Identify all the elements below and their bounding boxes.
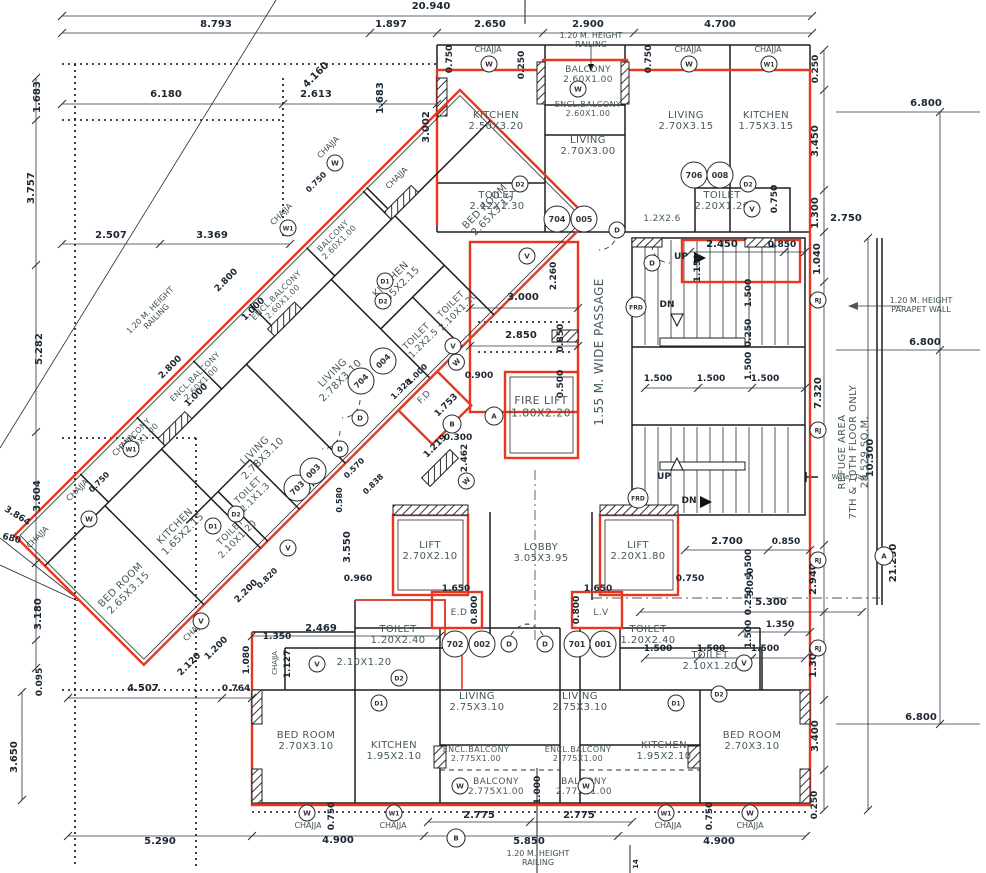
dimension-label: 6.800	[909, 337, 941, 348]
svg-text:005: 005	[576, 215, 593, 224]
tag-circle-frd: FRD	[626, 297, 646, 317]
dimension-label: 0.850	[768, 240, 796, 250]
dimension-label: 1.500	[744, 279, 754, 307]
dimension-label: 0.095	[35, 668, 45, 696]
tag-circle-002: 002	[469, 631, 495, 657]
svg-text:704: 704	[549, 215, 566, 224]
dimension-label: 2.613	[300, 89, 332, 100]
svg-text:D2: D2	[515, 182, 524, 189]
dimension-label: 8.793	[200, 19, 232, 30]
svg-text:702: 702	[447, 640, 464, 649]
dimension-label: 2.469	[305, 623, 337, 634]
tag-circle-d: D	[352, 410, 368, 426]
tag-circle-d2: D2	[740, 176, 756, 192]
dimension-label: 3.550	[342, 531, 353, 563]
svg-text:D1: D1	[374, 701, 383, 708]
room-label: L.V	[593, 608, 609, 618]
svg-text:D: D	[357, 415, 363, 423]
dimension-label: 1.127	[283, 650, 293, 678]
svg-text:706: 706	[686, 171, 703, 180]
tag-circle-d: D	[537, 636, 553, 652]
svg-text:RJ: RJ	[815, 646, 822, 653]
dimension-label: 2.450	[706, 239, 738, 250]
tag-circle-d2: D2	[711, 686, 727, 702]
tag-circle-w: W	[742, 805, 758, 821]
dimension-label: 3.400	[810, 720, 821, 752]
svg-text:V: V	[314, 661, 320, 669]
dimension-label: 20.940	[412, 1, 451, 12]
note-label: 1.20 M. HEIGHTPARAPET WALL	[890, 296, 953, 314]
dimension-label: UP	[657, 472, 671, 482]
note-label: CHAJJA	[271, 651, 279, 675]
tag-circle-v: V	[280, 540, 296, 556]
dimension-label: 2.462	[460, 444, 470, 472]
tag-circle-d1: D1	[371, 695, 387, 711]
svg-text:W: W	[574, 86, 582, 94]
svg-text:D: D	[506, 641, 512, 649]
svg-text:D1: D1	[208, 524, 217, 531]
dimension-label: DN	[681, 496, 696, 506]
dimension-label: 3.757	[26, 172, 37, 204]
tag-circle-w: W	[327, 155, 343, 171]
svg-text:001: 001	[595, 640, 612, 649]
dimension-label: 1.897	[375, 19, 407, 30]
room-label: 1.2X2.6	[643, 214, 681, 224]
tag-circle-w1: W1	[386, 805, 402, 821]
svg-text:A: A	[491, 413, 497, 421]
dimension-label: 0.960	[344, 574, 372, 584]
dimension-label: 2.775	[463, 810, 495, 821]
svg-text:W1: W1	[126, 447, 137, 454]
svg-text:W: W	[331, 160, 339, 168]
tag-circle-d: D	[609, 222, 625, 238]
svg-text:W: W	[582, 783, 590, 791]
svg-text:RJ: RJ	[815, 558, 822, 565]
room-label: KITCHEN1.75X3.15	[739, 110, 794, 132]
dimension-label: 4.900	[703, 836, 735, 847]
room-label: 2.10X1.20	[337, 657, 392, 668]
dimension-label: 2.775	[563, 810, 595, 821]
dimension-label: 2.507	[95, 230, 127, 241]
svg-text:V: V	[741, 660, 747, 668]
dimension-label: 3.604	[32, 480, 43, 512]
svg-text:V: V	[285, 545, 291, 553]
dimension-label: 0.250	[811, 55, 821, 83]
svg-text:D2: D2	[378, 299, 387, 306]
dimension-label: 0.250	[517, 51, 527, 79]
tag-circle-d1: D1	[205, 518, 221, 534]
tag-circle-w: W	[81, 511, 97, 527]
dimension-label: 1.300	[810, 197, 821, 229]
dimension-label: 0.300	[444, 433, 472, 443]
room-label: BALCONY2.60X1.00	[563, 65, 613, 85]
svg-text:W: W	[746, 810, 754, 818]
dimension-label: 1.040	[812, 243, 823, 275]
tag-circle-d: D	[332, 441, 348, 457]
svg-text:W1: W1	[764, 62, 775, 69]
tag-circle-706: 706	[681, 162, 707, 188]
svg-text:008: 008	[712, 171, 729, 180]
dimension-label: 1.350	[263, 632, 291, 642]
dimension-label: 0.750	[770, 185, 780, 213]
tag-circle-w: W	[299, 805, 315, 821]
tag-circle-b: B	[443, 415, 461, 433]
svg-text:B: B	[453, 835, 458, 843]
tag-circle-d2: D2	[228, 506, 244, 522]
note-label: Water Tap	[832, 473, 867, 481]
dimension-label: 3.369	[196, 230, 228, 241]
dimension-label: 2.850	[505, 330, 537, 341]
dimension-label: 0.764	[222, 684, 250, 694]
tag-circle-rj: RJ	[810, 292, 826, 308]
tag-circle-d1: D1	[668, 695, 684, 711]
dimension-label: 6.180	[150, 89, 182, 100]
tag-circle-w: W	[578, 778, 594, 794]
tag-circle-a: A	[485, 407, 503, 425]
dimension-label: 0.750	[445, 45, 455, 73]
dimension-label: 3.650	[9, 741, 20, 773]
svg-text:W: W	[85, 516, 93, 524]
svg-text:D2: D2	[743, 182, 752, 189]
dimension-label: 6.800	[910, 98, 942, 109]
dimension-label: 1.500	[751, 644, 779, 654]
note-label: CHAJJA	[379, 821, 407, 830]
note-label: CHAJJA	[736, 821, 764, 830]
dimension-label: 3.180	[33, 598, 44, 630]
dimension-label: 1.650	[442, 584, 470, 594]
svg-text:W: W	[303, 810, 311, 818]
tag-circle-rj: RJ	[810, 422, 826, 438]
svg-text:B: B	[449, 421, 454, 429]
tag-circle-005: 005	[571, 206, 597, 232]
tag-circle-d2: D2	[512, 176, 528, 192]
dimension-label: 2.750	[830, 213, 862, 224]
tag-circle-702: 702	[442, 631, 468, 657]
svg-text:FRD: FRD	[631, 496, 645, 503]
dimension-label: 3.000	[507, 292, 539, 303]
svg-text:A: A	[881, 553, 887, 561]
dimension-label: 6.800	[905, 712, 937, 723]
svg-text:D1: D1	[671, 701, 680, 708]
svg-text:W1: W1	[283, 226, 294, 233]
svg-text:D: D	[614, 227, 620, 235]
svg-text:V: V	[524, 253, 530, 261]
tag-circle-d1: D1	[377, 273, 393, 289]
room-label: BALCONY2.775X1.00	[468, 777, 524, 797]
tag-circle-d: D	[644, 255, 660, 271]
dimension-label: 0.800	[572, 596, 582, 624]
svg-text:FRD: FRD	[629, 305, 643, 312]
dimension-label: 5.282	[34, 333, 45, 365]
svg-text:D: D	[542, 641, 548, 649]
tag-circle-w: W	[570, 81, 586, 97]
tag-circle-b: B	[447, 829, 465, 847]
floor-plan-canvas: BED ROOM2.65X3.15KITCHEN1.65X2.15TOILET2…	[0, 0, 986, 873]
dimension-label: 14	[632, 859, 640, 869]
floor-plan-svg: BED ROOM2.65X3.15KITCHEN1.65X2.15TOILET2…	[0, 0, 986, 873]
note-label: CHAJJA	[654, 821, 682, 830]
note-label: CHAJJA	[754, 45, 782, 54]
tag-circle-v: V	[309, 656, 325, 672]
svg-text:D1: D1	[380, 279, 389, 286]
dimension-label: 1.683	[32, 81, 43, 113]
svg-text:D: D	[337, 446, 343, 454]
room-label: E.D	[451, 608, 468, 618]
svg-text:D: D	[649, 260, 655, 268]
svg-text:RJ: RJ	[815, 428, 822, 435]
tag-circle-rj: RJ	[810, 552, 826, 568]
tag-circle-w1: W1	[123, 441, 139, 457]
dimension-label: 1.500	[644, 374, 672, 384]
tag-circle-v: V	[519, 248, 535, 264]
tag-circle-a: A	[875, 547, 893, 565]
dimension-label: 0.750	[644, 45, 654, 73]
dimension-label: 7.320	[813, 377, 824, 409]
dimension-label: 1.683	[375, 82, 386, 114]
tag-circle-d2: D2	[391, 670, 407, 686]
room-label: BED ROOM2.70X3.10	[723, 730, 782, 752]
room-label: 1.55 M. WIDE PASSAGE	[592, 278, 606, 426]
tag-circle-d2: D2	[375, 293, 391, 309]
dimension-label: 1.080	[242, 646, 252, 674]
tag-circle-rj: RJ	[810, 640, 826, 656]
dimension-label: 4.700	[704, 19, 736, 30]
dimension-label: 0.850	[772, 537, 800, 547]
tag-circle-v: V	[736, 655, 752, 671]
dimension-label: 1.000	[533, 776, 543, 804]
room-label: KITCHEN1.95X2.10	[367, 740, 422, 762]
dimension-label: 0.900	[465, 371, 493, 381]
svg-text:D2: D2	[394, 676, 403, 683]
note-label: CHAJJA	[474, 45, 502, 54]
room-label: ENCL.BALCONY2.775X1.00	[443, 745, 510, 763]
tag-circle-701: 701	[564, 631, 590, 657]
room-label: BED ROOM2.70X3.10	[277, 730, 336, 752]
dimension-label: 2.650	[474, 19, 506, 30]
svg-text:W: W	[685, 61, 693, 69]
dimension-label: 1.500	[744, 352, 754, 380]
dimension-label: 0.250	[810, 791, 820, 819]
room-label: FIRE LIFT1.80X2.20	[511, 394, 571, 419]
tag-circle-frd: FRD	[628, 488, 648, 508]
dimension-label: 2.900	[572, 19, 604, 30]
room-label: KITCHEN1.95X2.10	[637, 740, 692, 762]
tag-circle-w: W	[681, 56, 697, 72]
dimension-label: 4.507	[127, 683, 159, 694]
svg-text:D2: D2	[231, 512, 240, 519]
dimension-label: 1.500	[697, 374, 725, 384]
dimension-label: DN	[659, 300, 674, 310]
dimension-label: 5.300	[755, 597, 787, 608]
dimension-label: 2.260	[549, 262, 559, 290]
svg-text:V: V	[450, 343, 456, 351]
dimension-label: 1.350	[766, 620, 794, 630]
note-label: CHAJJA	[294, 821, 322, 830]
dimension-label: UP	[674, 252, 688, 262]
tag-circle-w: W	[481, 56, 497, 72]
svg-text:W1: W1	[389, 811, 400, 818]
tag-circle-008: 008	[707, 162, 733, 188]
dimension-label: 0.580	[335, 487, 344, 513]
dimension-label: 3.002	[421, 111, 432, 143]
svg-text:RJ: RJ	[815, 298, 822, 305]
svg-text:D2: D2	[714, 692, 723, 699]
svg-text:W: W	[485, 61, 493, 69]
dimension-label: 0.750	[676, 574, 704, 584]
dimension-label: 4.900	[322, 835, 354, 846]
tag-circle-v: V	[445, 338, 461, 354]
tag-circle-w1: W1	[658, 805, 674, 821]
tag-circle-w1: W1	[761, 56, 777, 72]
svg-text:701: 701	[569, 640, 586, 649]
dimension-label: 3.450	[810, 125, 821, 157]
svg-text:V: V	[749, 206, 755, 214]
dimension-label: 5.290	[144, 836, 176, 847]
svg-text:002: 002	[474, 640, 491, 649]
dimension-label: 0.250	[744, 319, 754, 347]
svg-text:W1: W1	[661, 811, 672, 818]
tag-circle-w1: W1	[280, 220, 296, 236]
dimension-label: 3.050	[746, 568, 756, 596]
tag-circle-704: 704	[544, 206, 570, 232]
room-label: ENCL.BALCONY2.775X1.00	[545, 745, 612, 763]
dimension-label: 0.800	[470, 596, 480, 624]
tag-circle-v: V	[193, 613, 209, 629]
dimension-label: 0.750	[327, 802, 337, 830]
svg-text:W: W	[456, 783, 464, 791]
note-label: CHAJJA	[674, 45, 702, 54]
dimension-label: 5.850	[513, 836, 545, 847]
dimension-label: 0.750	[705, 802, 715, 830]
tag-circle-d: D	[501, 636, 517, 652]
dimension-label: 0.850	[556, 324, 566, 352]
tag-circle-v: V	[744, 201, 760, 217]
tag-circle-001: 001	[590, 631, 616, 657]
svg-text:V: V	[198, 618, 204, 626]
dimension-label: 1.150	[693, 254, 703, 282]
dimension-label: 2.700	[711, 536, 743, 547]
dimension-label: 1.500	[744, 620, 754, 648]
dimension-label: 1.500	[751, 374, 779, 384]
dimension-label: 1.650	[584, 584, 612, 594]
tag-circle-w: W	[452, 778, 468, 794]
room-label: KITCHEN2.50X3.20	[469, 110, 524, 132]
